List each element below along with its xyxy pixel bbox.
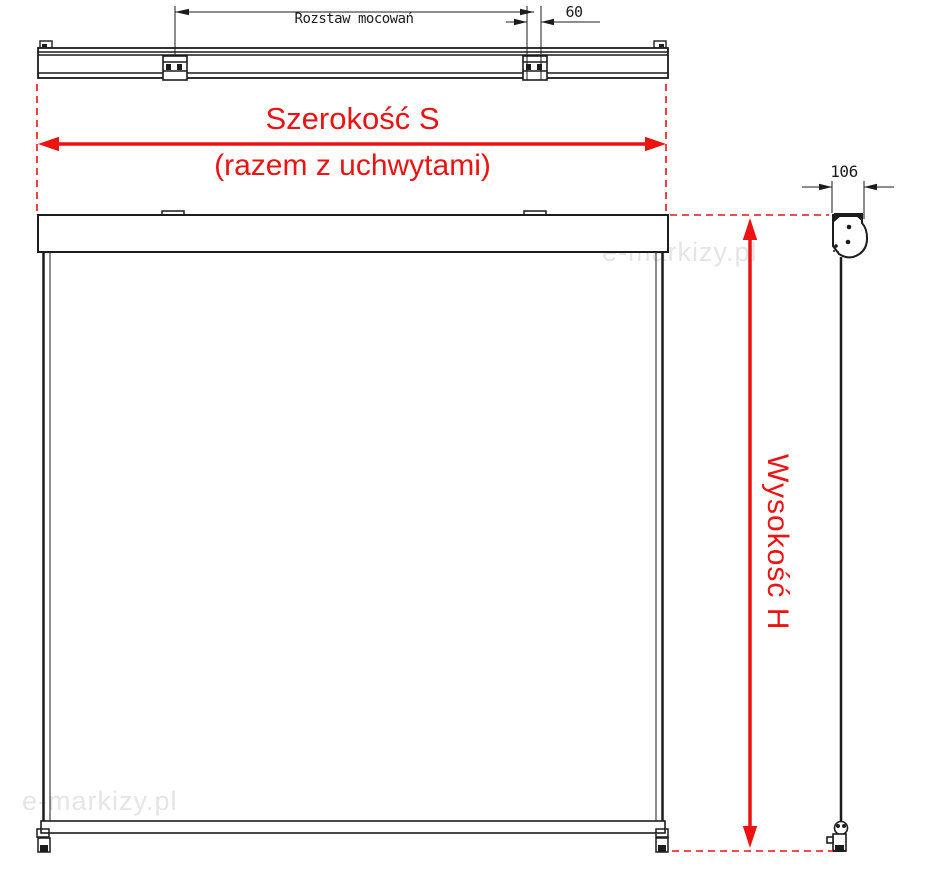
side-bottom-bar bbox=[827, 822, 848, 852]
technical-drawing-canvas: e-markizy.pl e-markizy.pl bbox=[0, 0, 950, 873]
dimension-height-H bbox=[670, 215, 833, 851]
width-dimension-subtitle: (razem z uchwytami) bbox=[170, 149, 535, 183]
side-view-cassette bbox=[827, 213, 867, 851]
mount-spacing-label: Rozstaw mocowań bbox=[288, 11, 420, 27]
bracket-width-value: 60 bbox=[556, 3, 592, 21]
mounting-bracket-left bbox=[163, 56, 187, 80]
front-view-screen bbox=[37, 211, 668, 852]
cassette-depth-value: 106 bbox=[822, 162, 866, 181]
top-view-cassette-bar bbox=[38, 41, 668, 80]
height-dimension-title: Wysokość H bbox=[760, 452, 794, 632]
width-dimension-title: Szerokość S bbox=[180, 101, 525, 137]
